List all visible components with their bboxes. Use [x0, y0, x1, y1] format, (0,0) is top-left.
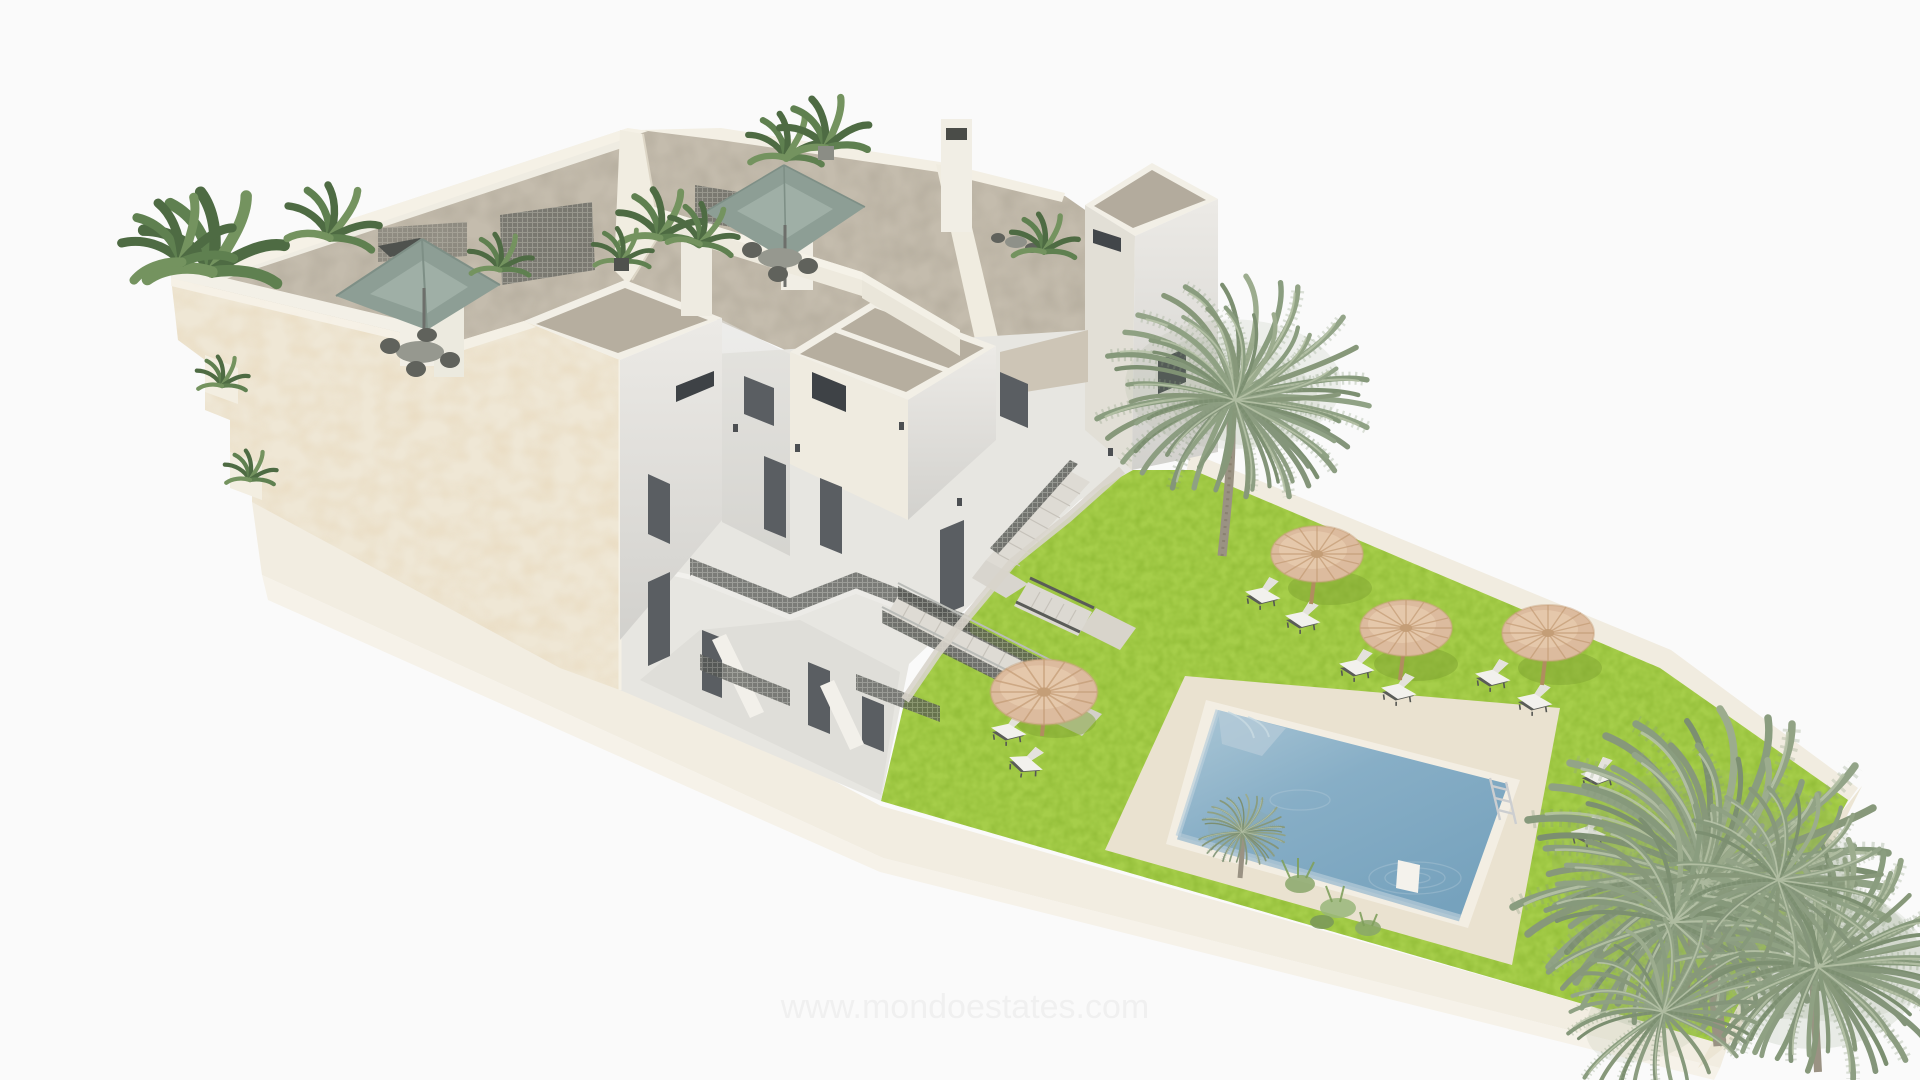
- svg-text:www.mondoestates.com: www.mondoestates.com: [780, 988, 1150, 1026]
